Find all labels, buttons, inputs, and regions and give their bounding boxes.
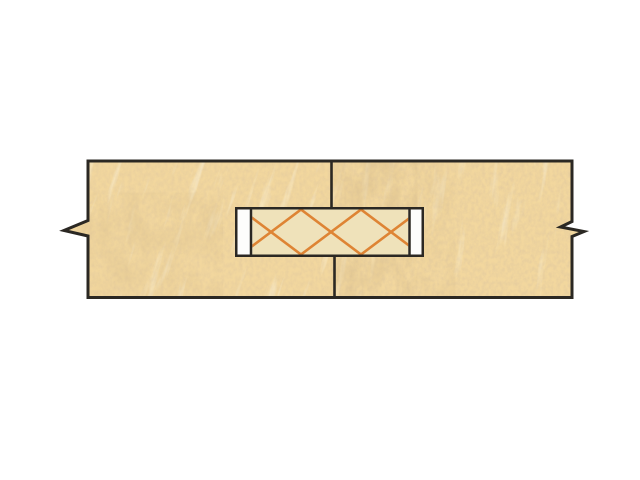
biscuit-crosshatch [252,210,408,255]
biscuit-joint-diagram [0,0,640,480]
diagram-figure [0,0,640,480]
diagram-canvas [0,0,640,480]
